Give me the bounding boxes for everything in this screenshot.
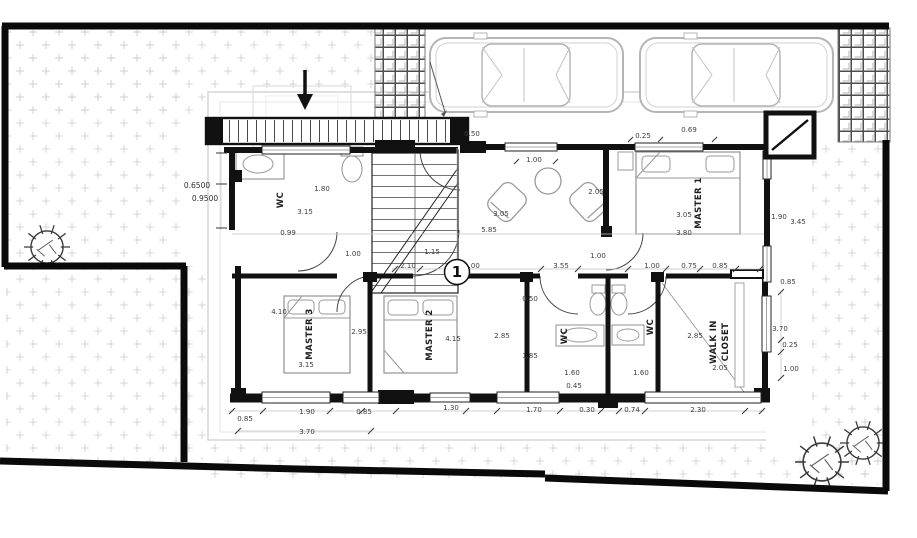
dim-wc-0-99: 0.99 [280,229,296,237]
dim-bot-1-90: 1.90 [299,408,315,416]
dim-wic-2-85: 2.85 [687,332,703,340]
toilet-bowl [611,293,627,315]
master1-bed [618,152,740,234]
dim-row-2-10: 2.10 [400,262,416,270]
floor-plan-drawing: 0.50 0.25 0.69 1.00 0.6500 0.9500 1.80 3… [0,0,917,538]
reference-bubble: 1 [445,260,470,285]
toilet-bowl [342,156,362,182]
dim-bot-1-70: 1.70 [526,406,542,414]
sink-basin [243,155,273,173]
dim-hall-2-05: 2.05 [588,188,604,196]
dim-bath-2-85: 2.85 [494,332,510,340]
sink-basin [617,329,639,341]
dim-m1-3-80: 3.80 [676,229,692,237]
room-label-wic-line1: WALK IN [709,320,719,364]
dim-hall-3-05: 3.05 [493,210,509,218]
dim-bot-0-30: 0.30 [579,406,595,414]
dim-row-0-75: 0.75 [681,262,697,270]
room-label-wic-line2: CLOSET [721,323,731,362]
dim-bath-0-50: 0.50 [522,295,538,303]
dim-1-00-top: 1.00 [526,156,542,164]
dim-row-3-55: 3.55 [553,262,569,270]
dim-wc1-1-60: 1.60 [564,369,580,377]
dim-right-0-85: 0.85 [780,278,796,286]
room-label-wc-right: WC [646,319,656,335]
dim-bot-3-70: 3.70 [299,428,315,436]
dim-hall-1-00b: 1.00 [590,252,606,260]
dim-wc2-1-60: 1.60 [633,369,649,377]
dim-bath-1-85: 1.85 [522,352,538,360]
dim-right-1-00: 1.00 [783,365,799,373]
room-label-master3: MASTER 3 [305,308,315,359]
dim-right-0-25: 0.25 [782,341,798,349]
dim-right-1-90: 1.90 [771,213,787,221]
dim-m3-4-10: 4.10 [271,308,287,316]
dim-row-1-00b: 1.00 [644,262,660,270]
room-label-wc-left: WC [560,328,570,344]
dim-hall-5-85: 5.85 [481,226,497,234]
dim-0-69: 0.69 [681,126,697,134]
dim-0-6500: 0.6500 [184,181,210,190]
reference-bubble-number: 1 [452,263,462,281]
car-2 [640,33,833,117]
dim-m1-3-05: 3.05 [676,211,692,219]
dim-wc-1-80: 1.80 [314,185,330,193]
toilet-bowl [590,293,606,315]
dim-bot-1-30: 1.30 [443,404,459,412]
dim-hall-1-00: 1.00 [345,250,361,258]
dim-hall-1-15: 1.15 [424,248,440,256]
master3-bed [284,296,350,373]
dim-wic-2-05: 2.05 [712,364,728,372]
room-label-master1: MASTER 1 [694,177,704,228]
room-label-wc-top: WC [276,192,286,208]
floor-plan-page: 0.50 0.25 0.69 1.00 0.6500 0.9500 1.80 3… [0,0,917,538]
dim-0-9500: 0.9500 [192,194,218,203]
dim-m3-3-15: 3.15 [298,361,314,369]
dim-bot-0-85a: 0.85 [237,415,253,423]
dim-bot-0-74: 0.74 [624,406,640,414]
toilet-tank [612,285,625,293]
dim-wc-3-15: 3.15 [297,208,313,216]
car-1 [430,33,623,117]
toilet-tank [592,285,605,293]
dim-m3-2-95: 2.95 [351,328,367,336]
dim-m2-4-15: 4.15 [445,335,461,343]
dim-row-0-85: 0.85 [712,262,728,270]
dim-right-3-70: 3.70 [772,325,788,333]
round-table [535,168,561,194]
dim-bot-0-85b: 0.85 [356,408,372,416]
dim-wc1-0-45: 0.45 [566,382,582,390]
dim-right-3-45: 3.45 [790,218,806,226]
dim-0-25: 0.25 [635,132,651,140]
dim-bot-2-30: 2.30 [690,406,706,414]
room-label-master2: MASTER 2 [425,309,435,360]
dim-0-50: 0.50 [464,130,480,138]
